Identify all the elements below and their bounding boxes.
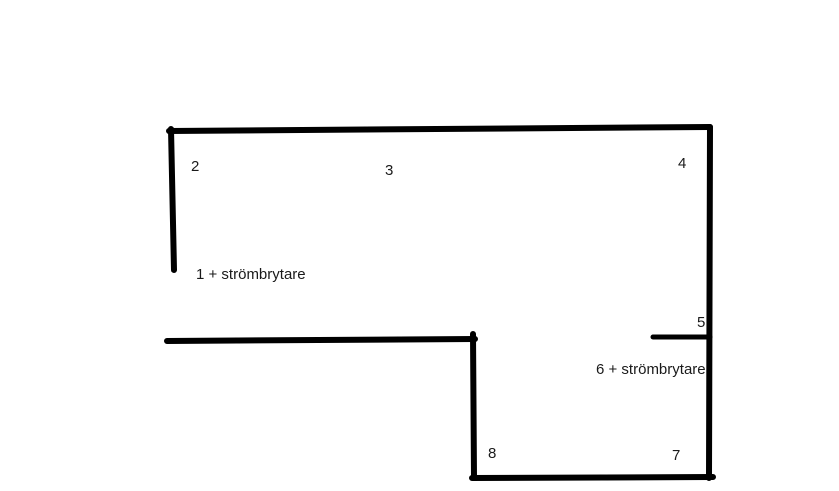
outlet-7-label: 7 [672,447,680,464]
outlet-6-switch-label: 6 + strömbrytare [596,361,706,378]
outlet-5-label: 5 [697,314,705,331]
outlet-4-label: 4 [678,155,686,172]
paint-canvas: 2341 + strömbrytare56 + strömbrytare87 [0,0,839,491]
outlet-2-label: 2 [191,158,199,175]
outlet-3-label: 3 [385,162,393,179]
outlet-8-label: 8 [488,445,496,462]
outlet-1-switch-label: 1 + strömbrytare [196,266,306,283]
labels-layer: 2341 + strömbrytare56 + strömbrytare87 [0,0,839,491]
